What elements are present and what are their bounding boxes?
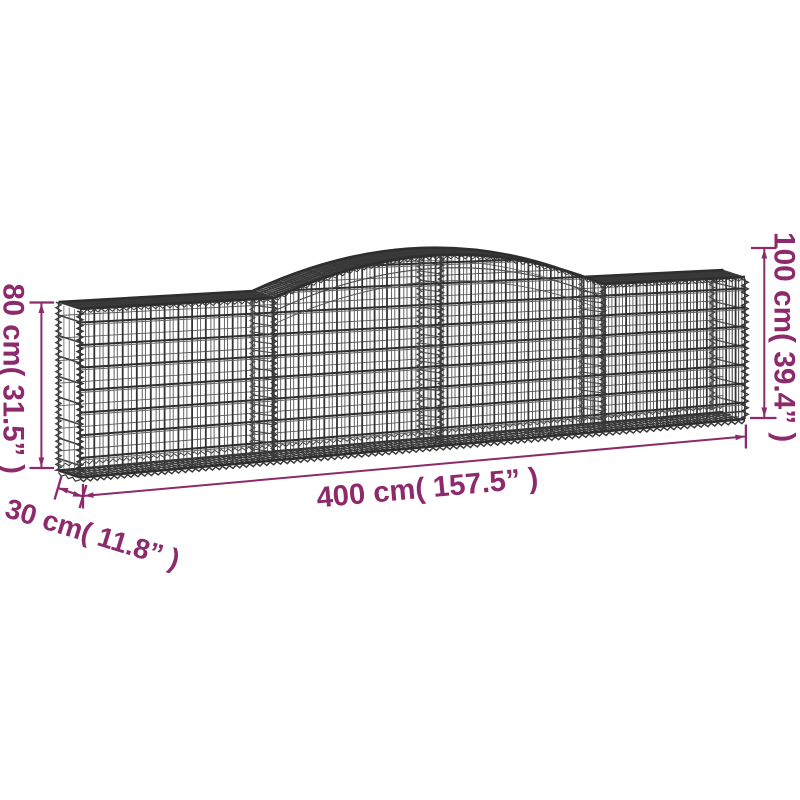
svg-text:100 cm( 39.4” ): 100 cm( 39.4” ) xyxy=(768,232,800,442)
svg-text:80 cm( 31.5” ): 80 cm( 31.5” ) xyxy=(0,284,30,475)
